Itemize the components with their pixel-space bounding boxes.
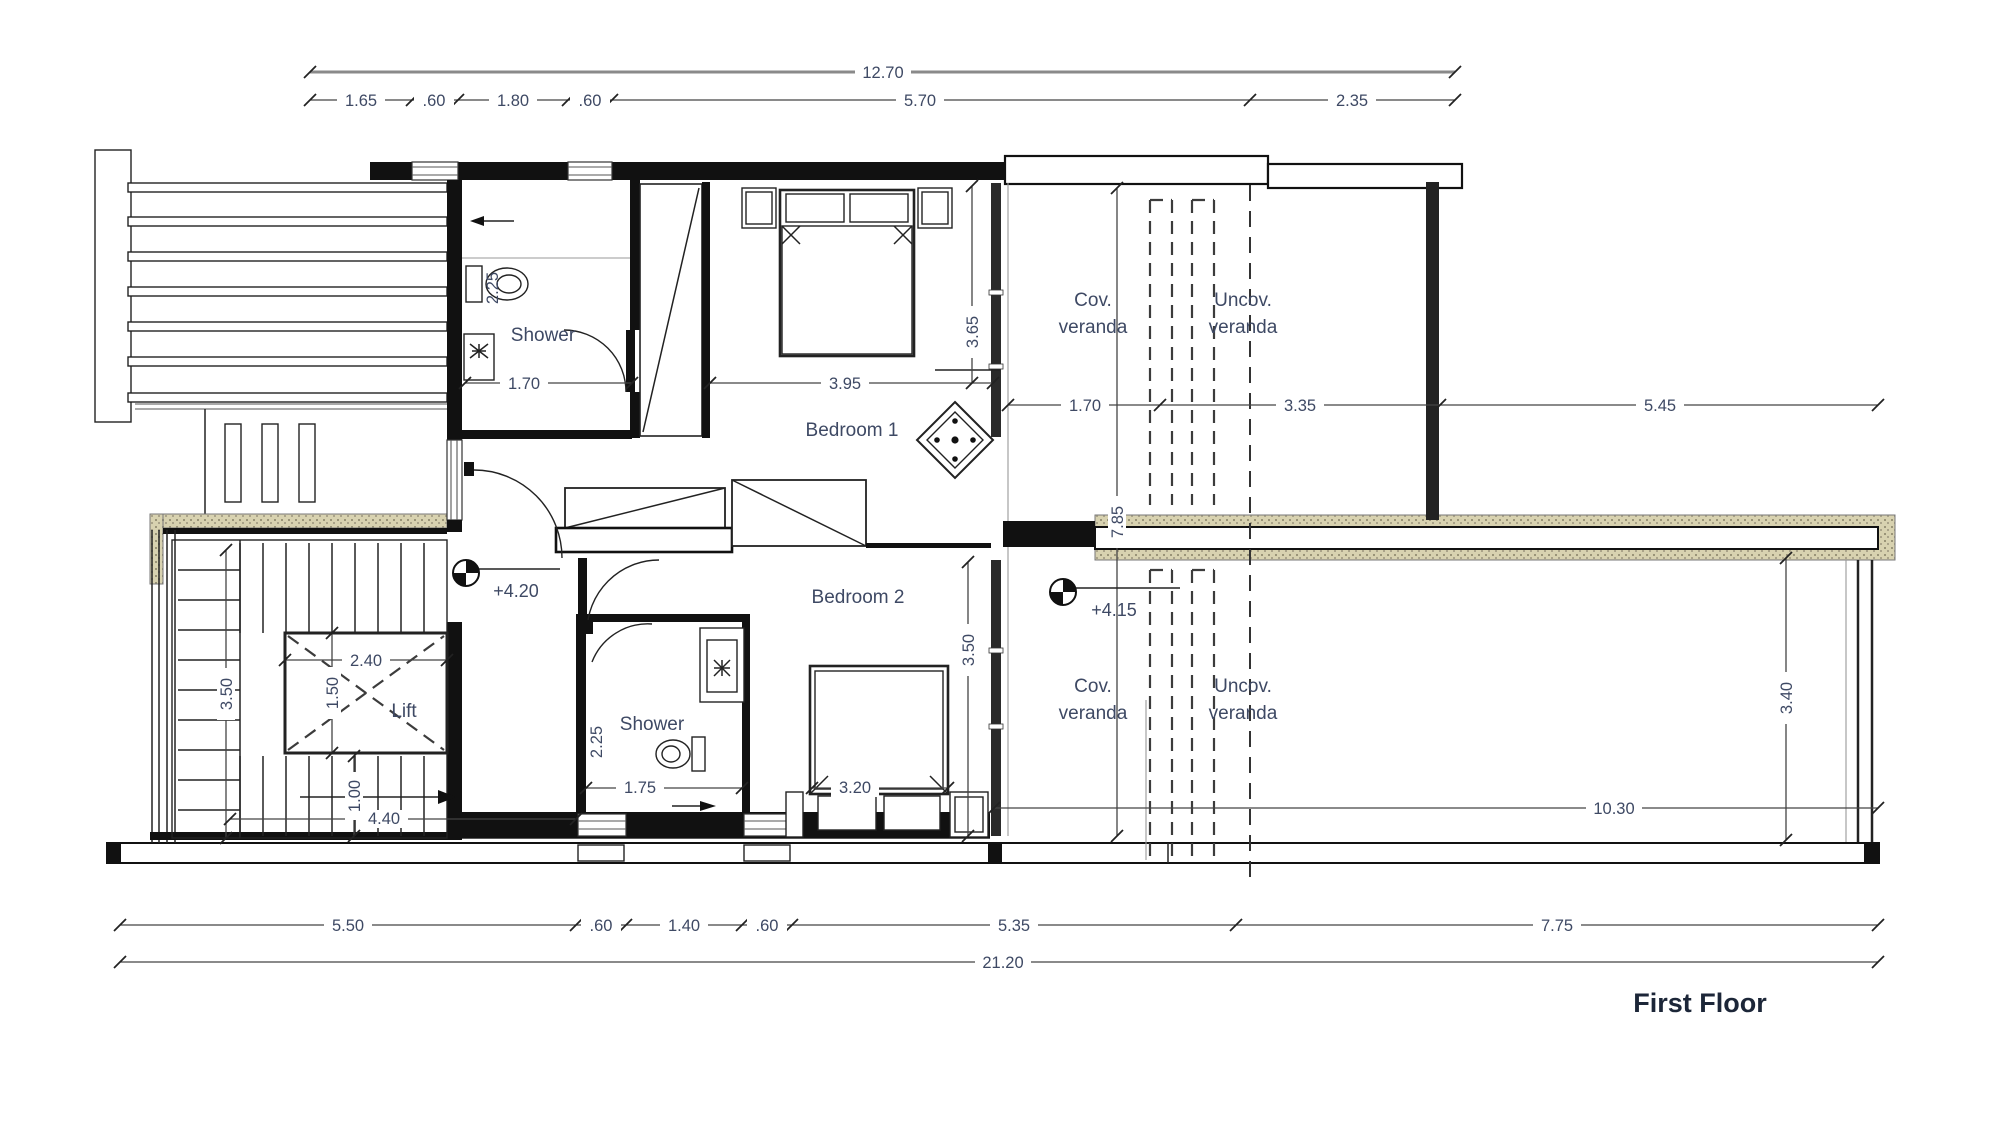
dim-top-overall: 12.70 <box>862 64 903 82</box>
dim-bottom-overall: 21.20 <box>982 954 1023 972</box>
dim-top-4: .60 <box>579 92 602 110</box>
window-top-1 <box>412 162 458 180</box>
sink-bottom <box>700 628 744 702</box>
nightstand-2-right <box>950 792 988 837</box>
dim-top-3: 1.80 <box>497 92 529 110</box>
sink-top <box>464 334 494 380</box>
dim-shower-top-depth: 2.25 <box>484 272 502 304</box>
door-shower-bottom <box>584 620 652 662</box>
room-label-cov-veranda-top-1: Cov. <box>1074 290 1112 311</box>
dim-top-1: 1.65 <box>345 92 377 110</box>
floor-plan-svg: 12.70 1.65 .60 1.80 .60 5.70 2.35 5.50 .… <box>0 0 2000 1122</box>
dim-veranda-1: 1.70 <box>1069 397 1101 415</box>
room-label-cov-veranda-top-2: veranda <box>1059 317 1128 338</box>
dim-lower-veranda-width: 10.30 <box>1593 800 1634 818</box>
bed-1 <box>780 190 914 356</box>
room-label-cov-veranda-bottom-1: Cov. <box>1074 676 1112 697</box>
nightstand-1-right <box>918 188 952 228</box>
dim-bed1-width: 3.95 <box>829 375 861 393</box>
dim-bottom-5: 5.35 <box>998 917 1030 935</box>
room-label-uncov-veranda-top-2: veranda <box>1209 317 1278 338</box>
dim-lift-width: 2.40 <box>350 652 382 670</box>
vent-arrow-top <box>470 216 514 226</box>
window-bottom-2 <box>744 814 792 836</box>
level-text-hall: +4.20 <box>493 581 539 601</box>
dim-stair-run: 4.40 <box>368 810 400 828</box>
ceiling-fan-symbol <box>917 402 993 478</box>
room-label-uncov-veranda-bottom-1: Uncov. <box>1214 676 1272 697</box>
dim-shower-top-width: 1.70 <box>508 375 540 393</box>
room-label-lift: Lift <box>391 701 417 722</box>
nightstand-2-left <box>786 792 803 837</box>
room-label-uncov-veranda-top-1: Uncov. <box>1214 290 1272 311</box>
dim-lift-depth: 1.50 <box>324 677 342 709</box>
door-hall <box>464 462 562 558</box>
dim-stair-width: 3.50 <box>218 678 236 710</box>
roof-beams-top-right <box>1005 156 1462 188</box>
dim-bed2-width: 3.20 <box>839 779 871 797</box>
level-text-veranda: +4.15 <box>1091 600 1137 620</box>
window-bottom-1 <box>578 814 626 836</box>
room-label-uncov-veranda-bottom-2: veranda <box>1209 703 1278 724</box>
nightstand-1-left <box>742 188 776 228</box>
room-label-bedroom-1: Bedroom 1 <box>806 420 899 441</box>
sliding-glass-wall-bedroom2 <box>989 560 1003 836</box>
toilet-bottom <box>656 737 705 771</box>
dim-top-6: 2.35 <box>1336 92 1368 110</box>
room-label-cov-veranda-bottom-2: veranda <box>1059 703 1128 724</box>
window-top-2 <box>568 162 612 180</box>
bed-2 <box>810 666 948 830</box>
room-label-bedroom-2: Bedroom 2 <box>812 587 905 608</box>
dim-bottom-2: .60 <box>590 917 613 935</box>
room-label-shower-bottom: Shower <box>620 714 685 735</box>
window-stair-hall <box>447 440 462 520</box>
wardrobe-band <box>556 480 991 552</box>
pergola-top-left <box>95 150 447 514</box>
bottom-floor-slab <box>107 838 1879 863</box>
level-marker-hall: +4.20 <box>453 560 560 601</box>
dim-veranda-2: 3.35 <box>1284 397 1316 415</box>
dim-veranda-depth: 7.85 <box>1109 506 1127 538</box>
dim-bed2-depth: 3.50 <box>960 634 978 666</box>
dim-bottom-6: 7.75 <box>1541 917 1573 935</box>
dim-bottom-1: 5.50 <box>332 917 364 935</box>
plan-title: First Floor <box>1633 988 1767 1018</box>
dim-top-5: 5.70 <box>904 92 936 110</box>
dim-bed1-depth: 3.65 <box>964 316 982 348</box>
dim-shower-bottom-depth: 2.25 <box>588 726 606 758</box>
dim-shower-bottom-width: 1.75 <box>624 779 656 797</box>
dim-bottom-4: .60 <box>756 917 779 935</box>
dim-stair-exit: 1.00 <box>346 780 364 812</box>
floorplan-canvas: 12.70 1.65 .60 1.80 .60 5.70 2.35 5.50 .… <box>0 0 2000 1122</box>
room-label-shower-top: Shower <box>511 325 576 346</box>
dim-veranda-3: 5.45 <box>1644 397 1676 415</box>
level-marker-veranda: +4.15 <box>1050 579 1180 620</box>
exit-arrow-bottom <box>672 801 716 811</box>
dim-bottom-3: 1.40 <box>668 917 700 935</box>
dim-top-2: .60 <box>423 92 446 110</box>
bedroom-2 <box>786 666 988 837</box>
sliding-glass-wall-bedroom1 <box>989 183 1003 437</box>
dim-balcony-depth: 3.40 <box>1778 682 1796 714</box>
